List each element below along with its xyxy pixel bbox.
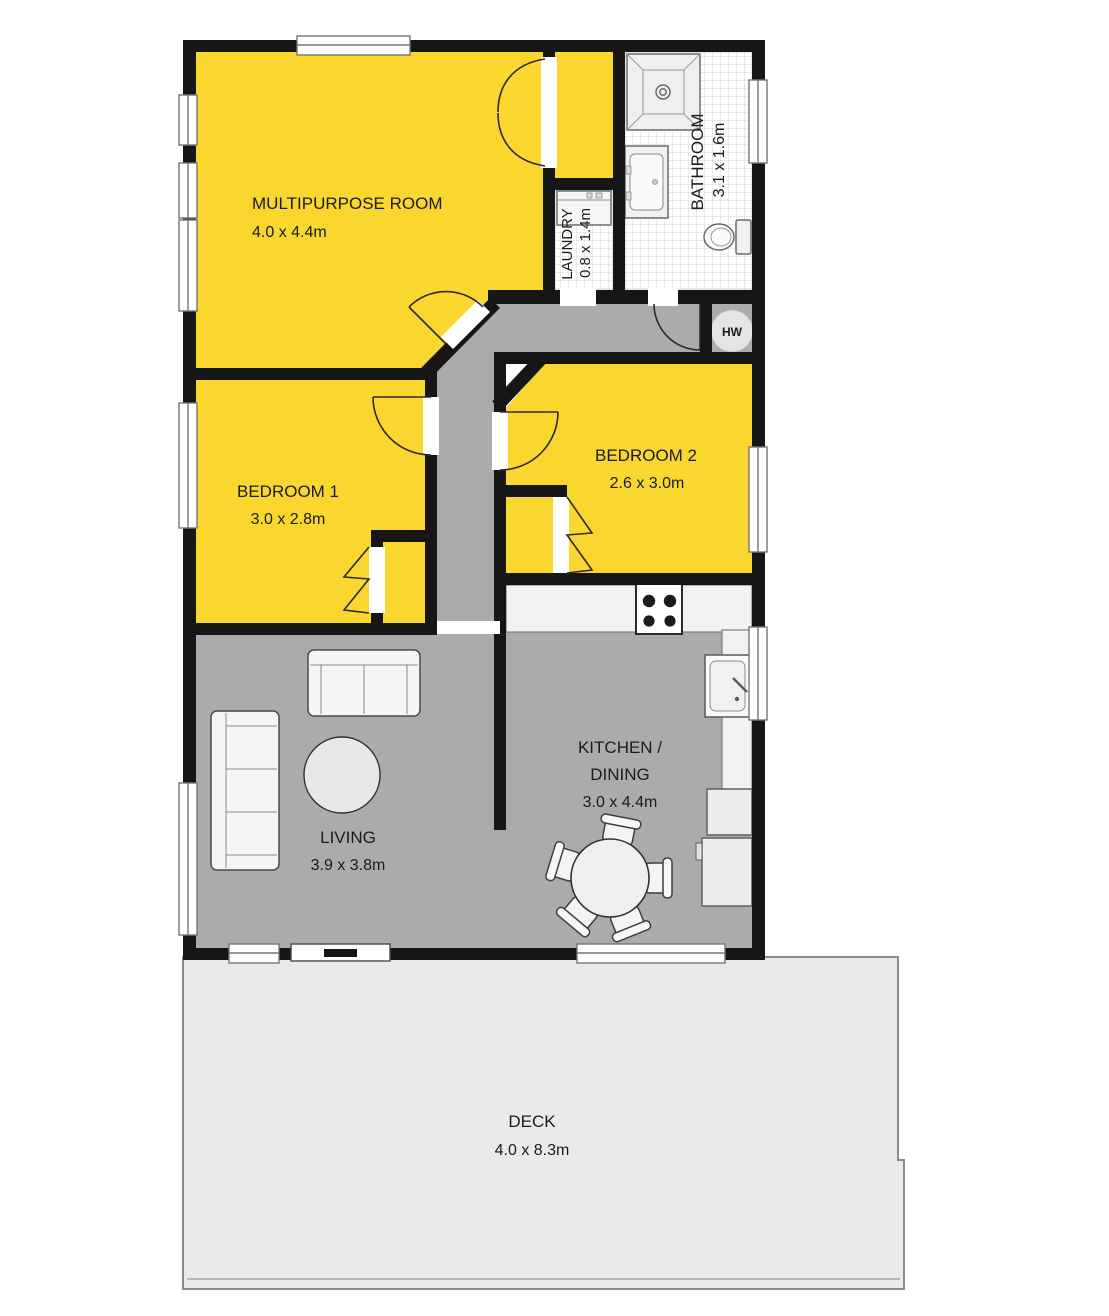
label-deck-dims: 4.0 x 8.3m <box>495 1142 570 1159</box>
vanity-sink <box>625 146 668 218</box>
wall-segment <box>183 40 765 52</box>
floor-plan: MULTIPURPOSE ROOM 4.0 x 4.4m BATHROOM 3.… <box>0 0 1109 1316</box>
label-bedroom2-dims: 2.6 x 3.0m <box>610 475 685 492</box>
sofa-2-seat <box>308 650 420 716</box>
threshold <box>437 621 500 634</box>
kitchen-sink <box>705 655 751 717</box>
window <box>749 447 767 552</box>
label-bedroom2-name: BEDROOM 2 <box>595 446 697 465</box>
window <box>179 163 197 218</box>
wall-segment <box>543 178 625 190</box>
window <box>229 944 279 963</box>
label-bathroom-dims: 3.1 x 1.6m <box>711 123 728 198</box>
cabinet <box>696 838 752 906</box>
label-kitchen-name1: KITCHEN / <box>578 738 662 757</box>
stove <box>636 584 682 634</box>
floor-plan-page: MULTIPURPOSE ROOM 4.0 x 4.4m BATHROOM 3.… <box>0 0 1109 1316</box>
door-opening <box>369 547 385 613</box>
label-bedroom1-dims: 3.0 x 2.8m <box>251 511 326 528</box>
wall-segment <box>488 290 765 304</box>
door-opening <box>423 397 439 455</box>
label-living-dims: 3.9 x 3.8m <box>311 857 386 874</box>
label-multipurpose-name: MULTIPURPOSE ROOM <box>252 194 442 213</box>
window <box>179 220 197 311</box>
sofa-3-seat <box>211 711 279 870</box>
wall-segment <box>183 368 433 380</box>
window <box>179 403 197 528</box>
wall-segment <box>183 623 437 635</box>
label-kitchen-name2: DINING <box>590 765 650 784</box>
label-kitchen-dims: 3.0 x 4.4m <box>583 794 658 811</box>
window <box>577 944 725 963</box>
bedroom1-floor <box>196 380 425 623</box>
window <box>749 80 767 163</box>
rug <box>304 737 380 813</box>
label-deck-name: DECK <box>508 1112 556 1131</box>
door-opening <box>648 288 678 306</box>
bedroom2-floor <box>506 364 752 573</box>
label-laundry-dims: 0.8 x 1.4m <box>577 208 594 278</box>
door-opening <box>492 412 508 470</box>
window <box>749 627 767 720</box>
wall-segment <box>494 573 765 585</box>
label-multipurpose-dims: 4.0 x 4.4m <box>252 224 327 241</box>
window <box>179 95 197 145</box>
fridge <box>707 789 752 835</box>
window <box>297 36 410 55</box>
dining-table <box>571 839 649 917</box>
door-opening <box>541 57 557 168</box>
label-laundry-name: LAUNDRY <box>559 208 576 279</box>
sliding-door <box>291 944 390 961</box>
door-opening <box>560 288 596 306</box>
wall-segment <box>613 40 625 302</box>
label-hot-water: HW <box>722 325 743 339</box>
window <box>179 783 197 935</box>
label-bathroom-name: BATHROOM <box>688 114 707 211</box>
label-living-name: LIVING <box>320 828 376 847</box>
label-bedroom1-name: BEDROOM 1 <box>237 482 339 501</box>
entry-alcove-floor <box>555 52 613 178</box>
